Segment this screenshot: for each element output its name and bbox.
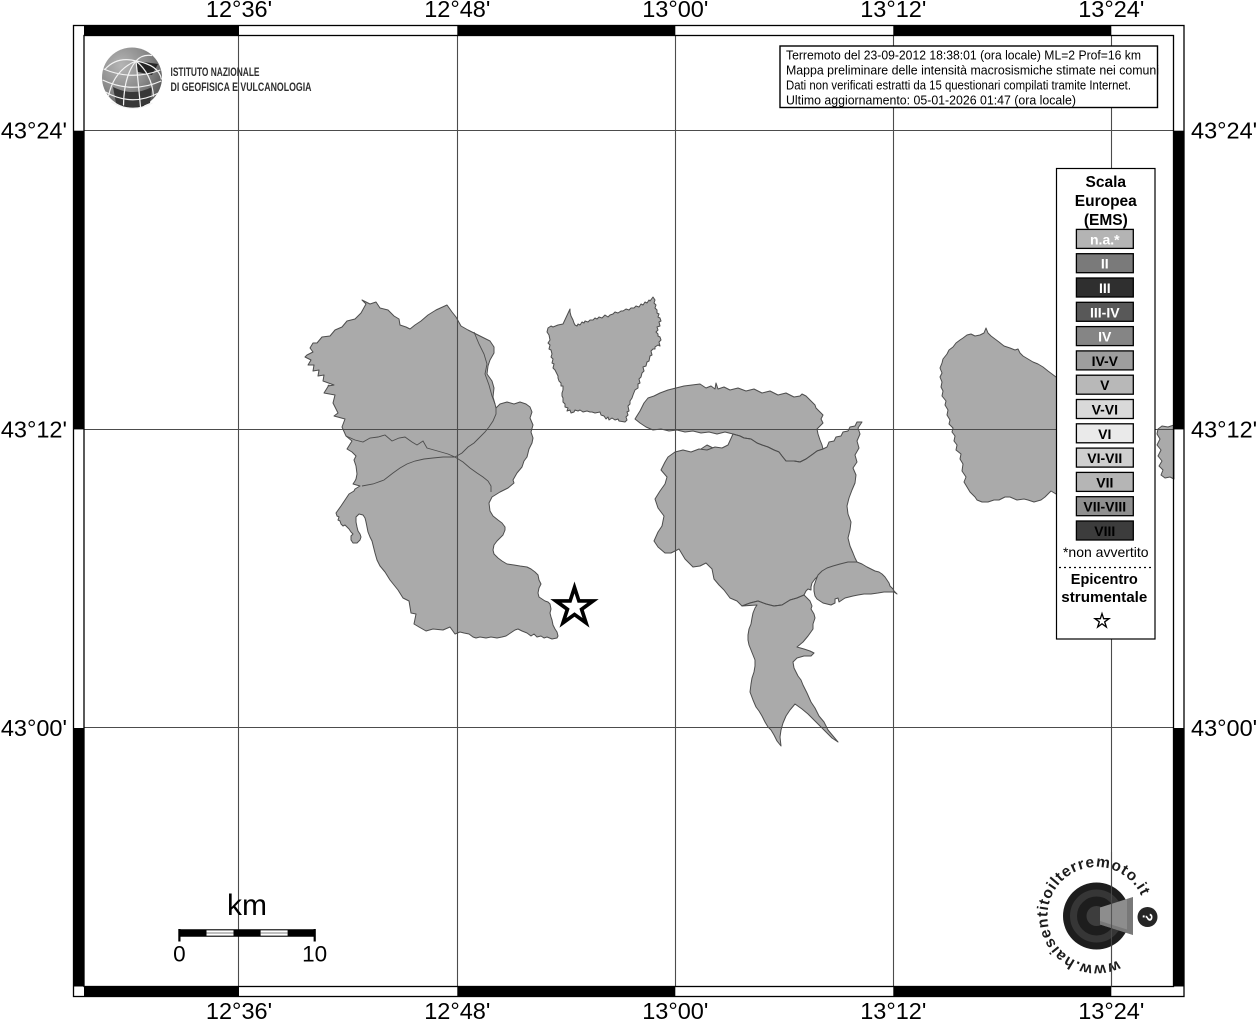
svg-text:IV-V: IV-V: [1092, 353, 1119, 369]
svg-text:VI: VI: [1098, 426, 1111, 442]
svg-text:Epicentro: Epicentro: [1071, 572, 1138, 588]
svg-text:43°12': 43°12': [1, 416, 67, 442]
svg-text:strumentale: strumentale: [1061, 590, 1147, 606]
svg-text:43°24': 43°24': [1191, 118, 1257, 144]
svg-text:?: ?: [1139, 912, 1156, 922]
svg-text:Terremoto del 23-09-2012 18:38: Terremoto del 23-09-2012 18:38:01 (ora l…: [786, 48, 1141, 63]
svg-text:10: 10: [302, 942, 327, 967]
svg-text:12°48': 12°48': [424, 998, 490, 1024]
svg-text:IV: IV: [1098, 329, 1112, 345]
svg-text:43°24': 43°24': [1, 118, 67, 144]
svg-text:12°36': 12°36': [206, 0, 272, 22]
svg-text:43°00': 43°00': [1, 715, 67, 741]
svg-text:*non avvertito: *non avvertito: [1063, 544, 1149, 560]
svg-text:V: V: [1100, 377, 1110, 393]
svg-text:13°24': 13°24': [1078, 0, 1144, 22]
svg-text:VIII: VIII: [1094, 523, 1115, 539]
svg-text:Europea: Europea: [1075, 193, 1137, 210]
svg-text:Mappa preliminare delle intens: Mappa preliminare delle intensità macros…: [786, 63, 1159, 78]
svg-text:VII-VIII: VII-VIII: [1083, 499, 1126, 515]
svg-text:km: km: [227, 889, 267, 922]
svg-text:Dati non verificati estratti d: Dati non verificati estratti da 15 quest…: [786, 78, 1131, 93]
svg-text:0: 0: [173, 942, 186, 967]
svg-text:DI GEOFISICA E VULCANOLOGIA: DI GEOFISICA E VULCANOLOGIA: [171, 80, 312, 94]
svg-text:ISTITUTO NAZIONALE: ISTITUTO NAZIONALE: [171, 65, 260, 79]
svg-text:(EMS): (EMS): [1084, 212, 1128, 229]
svg-text:II: II: [1101, 256, 1109, 272]
svg-text:Scala: Scala: [1086, 174, 1127, 191]
svg-text:13°12': 13°12': [860, 0, 926, 22]
svg-text:12°36': 12°36': [206, 998, 272, 1024]
svg-text:III-IV: III-IV: [1090, 304, 1120, 320]
svg-text:13°24': 13°24': [1078, 998, 1144, 1024]
svg-text:43°12': 43°12': [1191, 416, 1257, 442]
svg-text:Ultimo aggiornamento: 05-01-20: Ultimo aggiornamento: 05-01-2026 01:47 (…: [786, 93, 1076, 108]
svg-text:13°00': 13°00': [642, 0, 708, 22]
svg-text:VII: VII: [1096, 474, 1113, 490]
svg-text:III: III: [1099, 280, 1111, 296]
svg-text:VI-VII: VI-VII: [1087, 450, 1122, 466]
svg-text:V-VI: V-VI: [1092, 402, 1118, 418]
svg-text:13°00': 13°00': [642, 998, 708, 1024]
svg-text:n.a.*: n.a.*: [1090, 231, 1120, 247]
svg-text:13°12': 13°12': [860, 998, 926, 1024]
svg-text:43°00': 43°00': [1191, 715, 1257, 741]
svg-text:12°48': 12°48': [424, 0, 490, 22]
